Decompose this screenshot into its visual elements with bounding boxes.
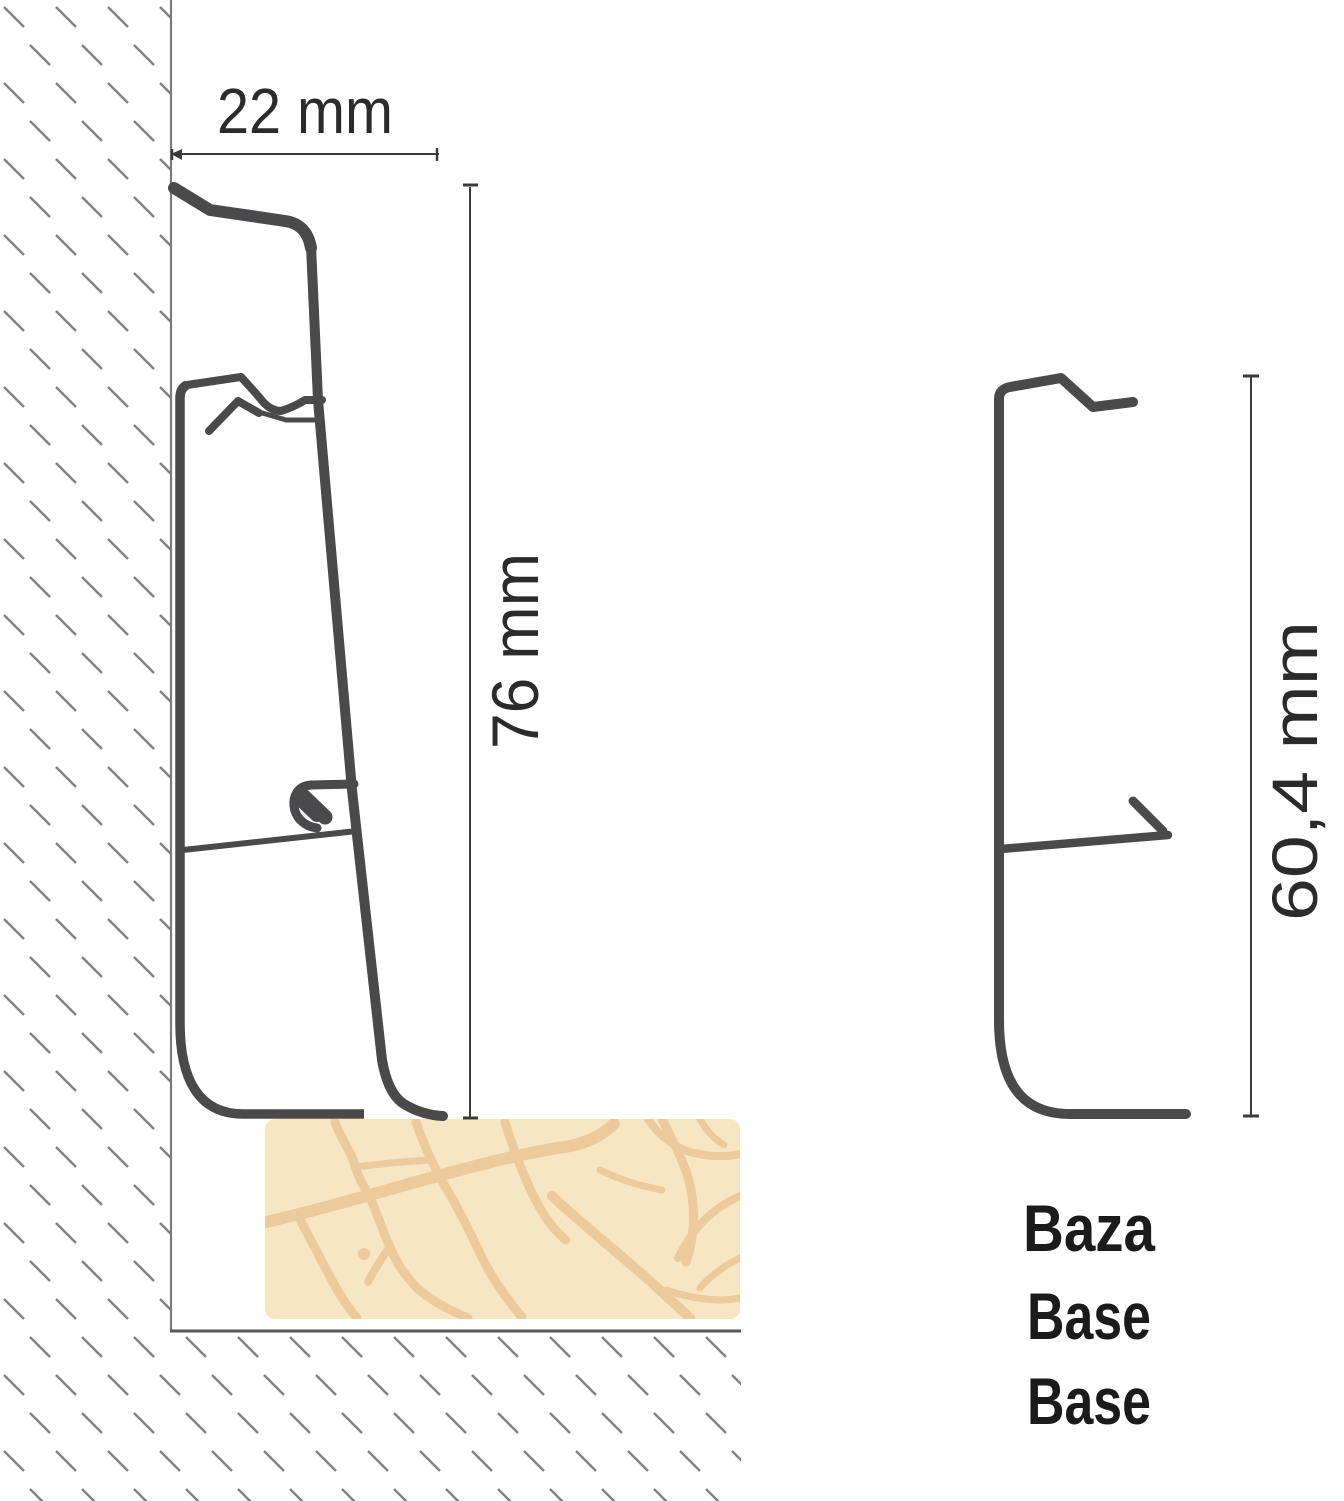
svg-text:22 mm: 22 mm [217,75,393,147]
svg-text:Base: Base [1027,1364,1151,1438]
svg-text:Baza: Baza [1023,1191,1156,1265]
svg-text:Base: Base [1027,1279,1151,1353]
svg-text:76 mm: 76 mm [478,553,552,749]
svg-text:60,4 mm: 60,4 mm [1259,621,1331,921]
